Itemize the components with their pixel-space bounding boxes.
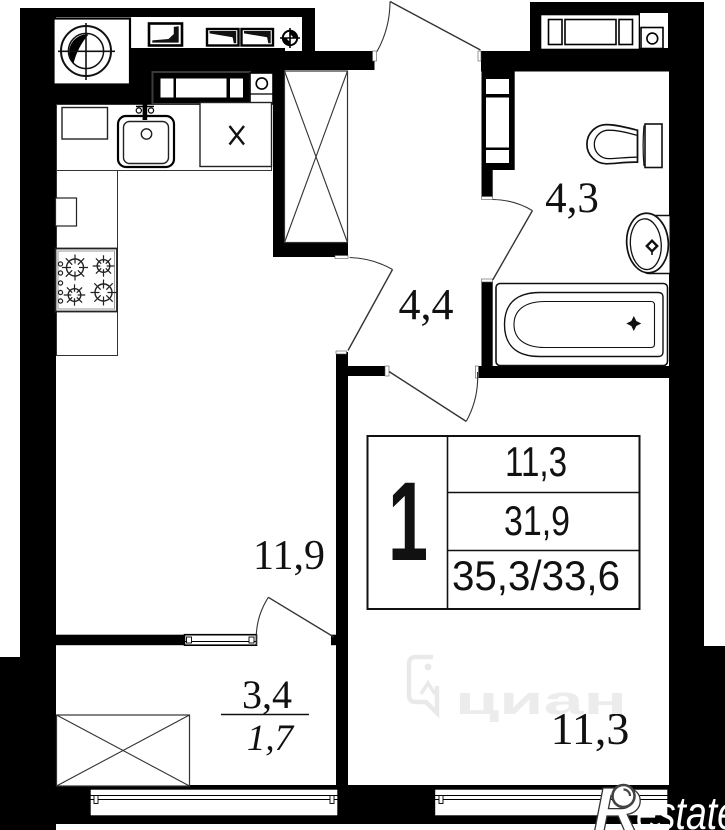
svg-text:31,9: 31,9 (504, 497, 570, 544)
svg-text:циан: циан (455, 679, 627, 723)
svg-text:35,3/33,6: 35,3/33,6 (452, 552, 620, 599)
svg-text:4,4: 4,4 (399, 280, 454, 329)
svg-text:1: 1 (388, 459, 428, 584)
svg-text:3,4: 3,4 (242, 672, 292, 717)
svg-text:4,3: 4,3 (545, 175, 599, 222)
svg-text:1,7: 1,7 (247, 718, 295, 759)
svg-text:11,9: 11,9 (253, 533, 325, 579)
svg-text:11,3: 11,3 (505, 438, 567, 485)
svg-text:estate: estate (636, 787, 725, 830)
